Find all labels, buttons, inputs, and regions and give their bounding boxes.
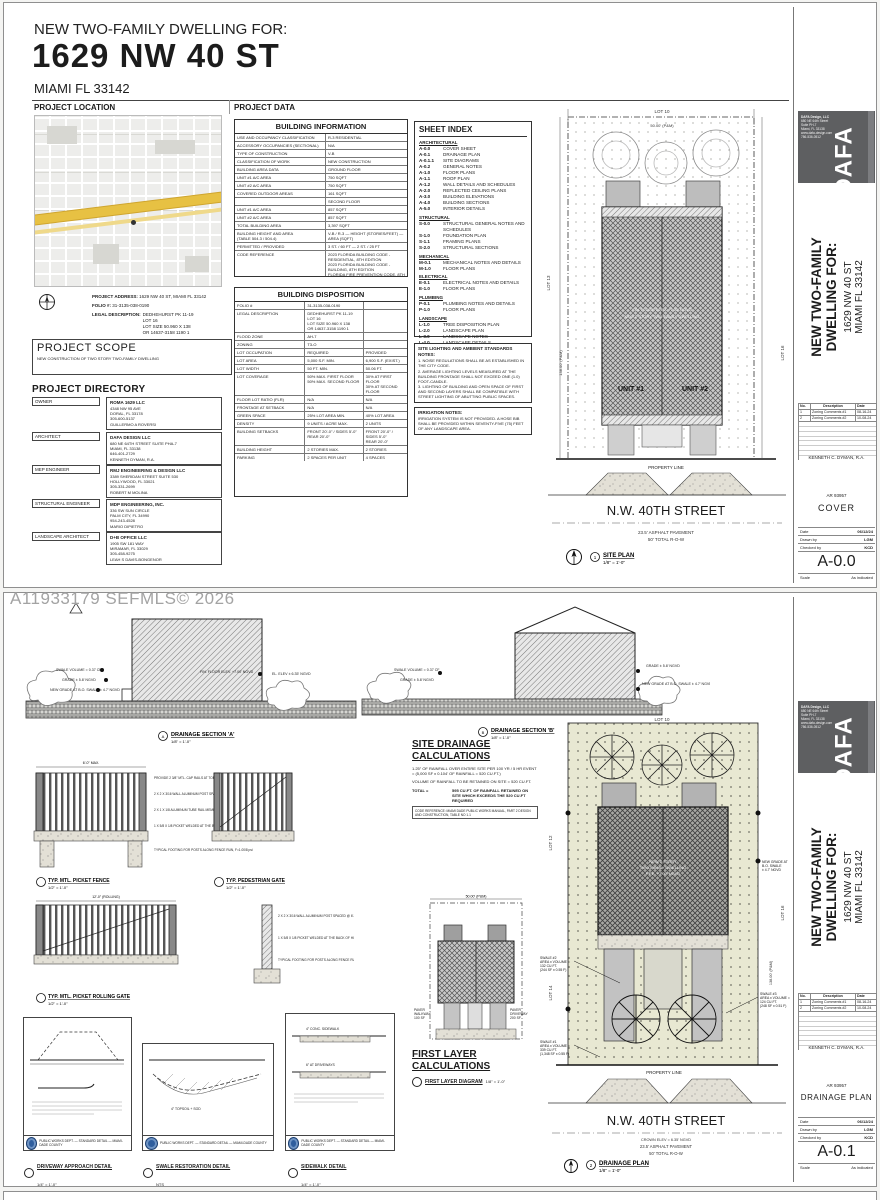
project-scope-box: PROJECT SCOPE NEW CONSTRUCTION OF TWO ST… xyxy=(32,339,232,375)
project-folio: FOLIO #: 31-3135-038-0190 xyxy=(92,303,222,309)
swale-restoration-label: SWALE RESTORATION DETAILNTS xyxy=(143,1155,230,1191)
drainage-code-reference: CODE REFERENCE: MIAMI DADE PUBLIC WORKS … xyxy=(412,806,538,819)
svg-text:PAVERDRIVEWAY200 SF: PAVERDRIVEWAY200 SF xyxy=(510,1008,528,1020)
svg-text:23.5' ASPHALT PAVEMENT: 23.5' ASPHALT PAVEMENT xyxy=(640,1144,693,1149)
sidewalk-detail-box: 4" CONC. SIDEWALK 6" AT DRIVEWAYS PUBLIC… xyxy=(285,1013,395,1151)
svg-text:4" CONC. SIDEWALK: 4" CONC. SIDEWALK xyxy=(306,1027,340,1031)
table-row: UNIT #2 A/C AREA 750 SQFT xyxy=(235,182,407,190)
building-information-title: BUILDING INFORMATION xyxy=(235,120,407,134)
sheet-number: A-0.0 xyxy=(794,553,879,571)
driveway-approach-label: DRIVEWAY APPROACH DETAIL1/4" = 1'-0" xyxy=(24,1155,112,1191)
table-row: FOLIO # 31-3135-038-0190 xyxy=(235,302,407,310)
header-rule xyxy=(32,100,789,101)
project-scope-text: NEW CONSTRUCTION OF TWO STORY TWO-FAMILY… xyxy=(33,355,231,362)
svg-text:N.W. 40TH STREET: N.W. 40TH STREET xyxy=(607,1113,726,1128)
svg-text:NEW GRADE ATB.O. SWALE± 4.7' N: NEW GRADE ATB.O. SWALE± 4.7' NGVD xyxy=(762,860,788,872)
architect-license: AR 93957 xyxy=(794,1083,879,1089)
driveway-approach-drawing xyxy=(24,1018,129,1130)
dafa-logo: DAFA Design, LLC 680 NE 64th Street Suit… xyxy=(798,701,875,773)
table-row: ACCESSORY OCCUPANCIES (SECTIONAL) N/A xyxy=(235,142,407,150)
svg-text:NEW 2 STORY TWO-FAMILY DWELLIN: NEW 2 STORY TWO-FAMILY DWELLING xyxy=(625,314,700,319)
svg-text:TYPICAL FOOTING FOR POSTS ALON: TYPICAL FOOTING FOR POSTS ALONG FENCE RU… xyxy=(278,958,354,962)
sidewalk-label: SIDEWALK DETAIL1/4" = 1'-0" xyxy=(288,1155,346,1191)
table-row: SECOND FLOOR xyxy=(235,198,407,206)
site-plan-drawing: UNIT #1 UNIT #2 FIN. FLOOR ELEV. +7.00' … xyxy=(538,103,794,577)
sheet-index-item: P-1.0FLOOR PLANS xyxy=(419,307,527,313)
svg-text:F.F.E. +7.00' NGVD: F.F.E. +7.00' NGVD xyxy=(646,871,681,876)
project-directory-title: PROJECT DIRECTORY xyxy=(32,384,145,396)
architect-of-record: KENNETH C. DYMAN, R.A. xyxy=(794,455,879,461)
svg-text:12'-0" (ROLLING): 12'-0" (ROLLING) xyxy=(92,895,120,899)
table-row: USE AND OCCUPANCY CLASSIFICATION R-3 RES… xyxy=(235,134,407,142)
drainage-calc-intro2: VOLUME OF RAINFALL TO BE RETAINED ON SIT… xyxy=(412,779,538,784)
svg-text:A: A xyxy=(162,734,165,739)
table-row: TYPE OF CONSTRUCTION V-B xyxy=(235,150,407,158)
svg-text:23.5' ASPHALT PAVEMENT: 23.5' ASPHALT PAVEMENT xyxy=(638,530,694,535)
table-row: UNIT #2 A/C AREA 857 SQFT xyxy=(235,214,407,222)
sheet-index-item: S-2.0STRUCTURAL SECTIONS xyxy=(419,245,527,251)
drainage-calc-cloud: SITE DRAINAGECALCULATIONS 1.25" OF RAINF… xyxy=(404,733,546,885)
svg-text:1/8" = 1'-0": 1/8" = 1'-0" xyxy=(171,739,191,744)
directory-entry: D+B OFFICE LLC1905 SW 181 WAY MIRAMAR, F… xyxy=(106,532,222,565)
mls-watermark: A11933179 SEFMLS© 2026 xyxy=(10,589,235,609)
dafa-logo-mark: DAFA xyxy=(830,716,858,773)
sheet-index-box: SHEET INDEX ARCHITECTURALA-0.0COVER SHEE… xyxy=(414,121,532,337)
building-disposition-cloud: BUILDING DISPOSITION FOLIO # 31-3135-038… xyxy=(228,283,414,501)
drawing-info: Date06/12/24 Drawn byLGM Checked byKCD xyxy=(798,1117,875,1142)
svg-text:1/2" = 1'-0": 1/2" = 1'-0" xyxy=(226,885,246,890)
svg-text:LOT 13: LOT 13 xyxy=(546,275,551,290)
svg-text:SWALE #2AREA x VOLUME =132 CU.: SWALE #2AREA x VOLUME =132 CU.FT.(244 SF… xyxy=(540,956,570,972)
project-title-vertical: NEW TWO-FAMILYDWELLING FOR: 1629 NW 40 S… xyxy=(794,797,879,977)
svg-text:PROPERTY LINE: PROPERTY LINE xyxy=(646,1070,682,1075)
dafa-logo: DAFA Design, LLC 680 NE 64th Street Suit… xyxy=(798,111,875,183)
document-page: NEW TWO-FAMILY DWELLING FOR: 1629 NW 40 … xyxy=(0,0,880,1200)
drainage-plan-drawing: NEW 2 STORY TWO-FAMILY DWELLING F.F.E. +… xyxy=(540,713,792,1175)
table-row: LOT OCCUPATION REQUIRED PROVIDED xyxy=(235,349,407,357)
table-row: UNIT #1 A/C AREA 857 SQFT xyxy=(235,206,407,214)
section-project-data: PROJECT DATA xyxy=(234,103,295,113)
svg-text:138.00' (P&M): 138.00' (P&M) xyxy=(769,960,773,985)
svg-text:PROPERTY LINE: PROPERTY LINE xyxy=(648,465,684,470)
revision-table: No.DescriptionDate 1 Zoning Comments #1 … xyxy=(798,403,877,460)
svg-text:TYP. MTL. PICKET FENCE: TYP. MTL. PICKET FENCE xyxy=(48,878,110,884)
svg-text:138.00' (P&M): 138.00' (P&M) xyxy=(558,350,563,376)
svg-text:6'-0" MAX.: 6'-0" MAX. xyxy=(83,761,100,765)
sheet-index-item: E-1.0FLOOR PLANS xyxy=(419,286,527,292)
project-address: PROJECT ADDRESS: 1629 NW 40 ST, MIAMI FL… xyxy=(92,294,222,300)
table-row: PERMITTED / PROVIDED 3 ST. / 60 FT — 2 S… xyxy=(235,243,407,251)
table-row: FRONTAGE AT SETBACK N/A N/A xyxy=(235,404,407,412)
column-divider xyxy=(229,100,230,114)
drainage-plan-cloud: NEW 2 STORY TWO-FAMILY DWELLING F.F.E. +… xyxy=(540,713,792,1175)
project-directory: OWNERROMA 1629 LLC4348 NW 95 AVE DORAL, … xyxy=(32,397,222,573)
building-information-table: BUILDING INFORMATION USE AND OCCUPANCY C… xyxy=(234,119,408,277)
table-row: BUILDING AREA DATA GROUND FLOOR xyxy=(235,166,407,174)
first-layer-cloud: 50.00' (P&M) PAVERWALKWAY100 SF PAVERDRI… xyxy=(404,889,546,1157)
svg-text:NEW 2 STORY: NEW 2 STORY xyxy=(649,859,677,864)
irrigation-notes: IRRIGATION NOTES: IRRIGATION SYSTEM IS N… xyxy=(414,407,532,435)
svg-text:4" TOPSOIL + SOD: 4" TOPSOIL + SOD xyxy=(171,1107,201,1111)
header-subtitle: MIAMI FL 33142 xyxy=(34,81,130,96)
swale-restoration-drawing: 4" TOPSOIL + SOD xyxy=(143,1044,271,1130)
svg-text:1/2" = 1'-0": 1/2" = 1'-0" xyxy=(48,885,68,890)
svg-text:1 X 5/8 X 1/8 PICKET WELDED AT: 1 X 5/8 X 1/8 PICKET WELDED AT THE BACK … xyxy=(278,936,354,940)
table-row: TOTAL BUILDING AREA 3,397 SQFT xyxy=(235,222,407,230)
sheet-index-cloud: SHEET INDEX ARCHITECTURALA-0.0COVER SHEE… xyxy=(408,113,540,508)
directory-entry: MDP ENGINEERING, INC.336 SW SUN CIRCLE P… xyxy=(106,499,222,532)
table-row: FLOOD ZONE AH-7 xyxy=(235,333,407,341)
svg-text:50' TOTAL R-O-W: 50' TOTAL R-O-W xyxy=(648,537,685,542)
sheet-number: A-0.1 xyxy=(794,1143,879,1161)
building-information-cloud: BUILDING INFORMATION USE AND OCCUPANCY C… xyxy=(228,115,414,281)
north-arrow-icon xyxy=(38,293,56,311)
svg-text:DRAINAGE SECTION 'A': DRAINAGE SECTION 'A' xyxy=(171,732,235,738)
drawing-info: Date06/12/24 Drawn byLGM Checked byKCD xyxy=(798,527,875,552)
map-site-marker xyxy=(131,220,136,225)
directory-role: ARCHITECT xyxy=(32,432,100,441)
table-row: LOT WIDTH 50 FT. MIN. 50.06 FT. xyxy=(235,365,407,373)
sheet-index-item: M-1.0FLOOR PLANS xyxy=(419,266,527,272)
svg-text:SWALE #3AREA x VOLUME =124 CU.: SWALE #3AREA x VOLUME =124 CU.FT.(248 SF… xyxy=(760,992,790,1008)
svg-text:2 X 2 X 3/16 WALL ALUMINUM POS: 2 X 2 X 3/16 WALL ALUMINUM POST SPACED @… xyxy=(278,914,354,918)
svg-text:NEW GRADE AT B.O. SWALE ± 4.7': NEW GRADE AT B.O. SWALE ± 4.7' NGVD xyxy=(642,682,710,686)
building-disposition-title: BUILDING DISPOSITION xyxy=(235,288,407,302)
directory-role: MEP ENGINEER xyxy=(32,465,100,474)
sheet-next-edge xyxy=(3,1191,877,1200)
table-row: CLASSIFICATION OF WORK NEW CONSTRUCTION xyxy=(235,158,407,166)
drainage-calc-intro1: 1.25" OF RAINFALL OVER ENTIRE SITE PER 1… xyxy=(412,766,538,776)
table-row: LOT COVERAGE 50% MAX. FIRST FLOOR 50% MA… xyxy=(235,373,407,396)
svg-text:LOT 10: LOT 10 xyxy=(655,109,670,114)
svg-text:UNIT #2: UNIT #2 xyxy=(682,386,708,393)
svg-text:SWALE #1AREA x VOLUME =339 CU.: SWALE #1AREA x VOLUME =339 CU.FT.(1,348 … xyxy=(540,1040,570,1056)
fence-details-cloud: 6'-0" MAX. PROVIDE 2 3/8" MTL. CAP RAILS… xyxy=(14,755,354,1017)
svg-text:1: 1 xyxy=(594,555,597,560)
sheet-index-item: S-0.0STRUCTURAL GENERAL NOTES AND SCHEDU… xyxy=(419,221,527,233)
svg-text:50.00' (P&M): 50.00' (P&M) xyxy=(466,895,487,899)
table-row: UNIT #1 A/C AREA 750 SQFT xyxy=(235,174,407,182)
svg-text:50' TOTAL R-O-W: 50' TOTAL R-O-W xyxy=(649,1151,683,1156)
directory-entry: ROMA 1629 LLC4348 NW 95 AVE DORAL, FL 33… xyxy=(106,397,222,430)
table-row: BUILDING HEIGHT AND AREA (TABLE 504.3 / … xyxy=(235,230,407,243)
svg-text:FIN. FLOOR ELEV. +7.00' NGVD: FIN. FLOOR ELEV. +7.00' NGVD xyxy=(632,307,691,312)
svg-text:TYP. PEDESTRIAN GATE: TYP. PEDESTRIAN GATE xyxy=(226,878,286,884)
table-row: PARKING 2 SPACES PER UNIT 4 SPACES xyxy=(235,454,407,461)
detail-callout-icon xyxy=(412,1077,422,1087)
svg-text:1/8" = 1'-0": 1/8" = 1'-0" xyxy=(599,1168,621,1173)
revision-table: No.DescriptionDate 1 Zoning Comments #1 … xyxy=(798,993,877,1050)
directory-role: OWNER xyxy=(32,397,100,406)
svg-text:2: 2 xyxy=(590,1163,593,1168)
svg-text:SWALE VOLUME = 0.37 CF: SWALE VOLUME = 0.37 CF xyxy=(394,668,440,672)
table-row: FLOOR LOT RATIO (FLR) N/A N/A xyxy=(235,396,407,404)
scale-row: ScaleAs indicated xyxy=(798,1163,875,1171)
svg-text:CROWN ELEV = 6.35' NGVD: CROWN ELEV = 6.35' NGVD xyxy=(641,1138,691,1142)
svg-text:NEW GRADE AT B.O. SWALE ± 4.7': NEW GRADE AT B.O. SWALE ± 4.7' NGVD xyxy=(50,688,120,692)
sheet-index-title: SHEET INDEX xyxy=(419,125,527,137)
svg-text:PAVERWALKWAY100 SF: PAVERWALKWAY100 SF xyxy=(414,1008,432,1020)
section-project-location: PROJECT LOCATION xyxy=(34,103,115,113)
sheet-name: DRAINAGE PLAN xyxy=(794,1093,879,1102)
table-row: BUILDING HEIGHT 2 STORIES MAX. 2 STORIES xyxy=(235,446,407,454)
swale-restoration-detail-box: 4" TOPSOIL + SOD PUBLIC WORKS DEPT. — ST… xyxy=(142,1043,274,1151)
dafa-logo-mark: DAFA xyxy=(830,126,858,183)
project-title-vertical: NEW TWO-FAMILYDWELLING FOR: 1629 NW 40 S… xyxy=(794,207,879,387)
svg-text:B: B xyxy=(482,730,485,735)
svg-text:1/8" = 1'-0": 1/8" = 1'-0" xyxy=(603,560,625,565)
sheet-index-item: A-5.0INTERIOR DETAILS xyxy=(419,206,527,212)
site-plan-cloud: UNIT #1 UNIT #2 FIN. FLOOR ELEV. +7.00' … xyxy=(538,103,794,577)
header-pretitle: NEW TWO-FAMILY DWELLING FOR: xyxy=(34,21,287,38)
svg-text:DRAINAGE PLAN: DRAINAGE PLAN xyxy=(599,1161,649,1167)
table-row: LOT AREA 5,000 S.F. MIN. 6,900 S.F. (EXI… xyxy=(235,357,407,365)
first-layer-title: FIRST LAYERCALCULATIONS xyxy=(412,1049,538,1073)
svg-text:LOT 16: LOT 16 xyxy=(780,905,785,920)
table-row: ZONING T3-O xyxy=(235,341,407,349)
building-disposition-table: BUILDING DISPOSITION FOLIO # 31-3135-038… xyxy=(234,287,408,497)
first-layer-diagram: 50.00' (P&M) PAVERWALKWAY100 SF PAVERDRI… xyxy=(412,893,538,1045)
svg-text:TYPICAL FOOTING FOR POSTS ALON: TYPICAL FOOTING FOR POSTS ALONG FENCE RU… xyxy=(154,848,253,852)
svg-text:GRADE ± 5.8' NGVD: GRADE ± 5.8' NGVD xyxy=(400,678,434,682)
svg-text:LOT 12: LOT 12 xyxy=(548,835,553,850)
site-lighting-notes: SITE LIGHTING AND AMBIENT STANDARDS NOTE… xyxy=(414,343,532,403)
miami-dade-seal-icon xyxy=(145,1137,158,1150)
project-scope-title: PROJECT SCOPE xyxy=(33,340,231,355)
svg-text:UNIT #1: UNIT #1 xyxy=(618,386,644,393)
table-row: GREEN SPACE 25% LOT AREA MIN. 40% LOT AR… xyxy=(235,412,407,420)
table-row: BUILDING SETBACKS FRONT 20'-0" / SIDES 5… xyxy=(235,428,407,446)
directory-entry: DAFA DESIGN LLC680 NE 64TH STREET SUITE … xyxy=(106,432,222,465)
sheet-index-list: ARCHITECTURALA-0.0COVER SHEETA-0.1DRAINA… xyxy=(419,140,527,347)
fence-details-drawing: 6'-0" MAX. PROVIDE 2 3/8" MTL. CAP RAILS… xyxy=(14,755,354,1017)
svg-text:EL. ELEV ± 6.35' NGVD: EL. ELEV ± 6.35' NGVD xyxy=(272,672,311,676)
sidewalk-drawing: 4" CONC. SIDEWALK 6" AT DRIVEWAYS xyxy=(286,1014,392,1130)
sheet-drainage: SWALE VOLUME = 0.37 CF GRADE ± 5.8' NGVD… xyxy=(3,592,877,1187)
svg-text:GRADE ± 5.8' NGVD: GRADE ± 5.8' NGVD xyxy=(62,678,96,682)
miami-dade-seal-icon xyxy=(26,1137,37,1150)
svg-text:50.00' (P&M): 50.00' (P&M) xyxy=(650,123,674,128)
svg-text:SITE PLAN: SITE PLAN xyxy=(603,553,634,559)
sheet-name: COVER xyxy=(794,503,879,513)
svg-text:N.W. 40TH STREET: N.W. 40TH STREET xyxy=(607,503,726,518)
svg-text:SWALE VOLUME = 0.37 CF: SWALE VOLUME = 0.37 CF xyxy=(56,668,102,672)
directory-role: STRUCTURAL ENGINEER xyxy=(32,499,100,508)
driveway-approach-detail-box: PUBLIC WORKS DEPT. — STANDARD DETAIL — M… xyxy=(23,1017,132,1151)
table-row: CODE REFERENCE 2023 FLORIDA BUILDING COD… xyxy=(235,251,407,277)
svg-text:2 X 1 X 1/8 ALUMINUM TUBE RAIL: 2 X 1 X 1/8 ALUMINUM TUBE RAIL MEMBER xyxy=(154,808,220,812)
miami-dade-seal-icon xyxy=(288,1137,299,1150)
legal-description: LEGAL DESCRIPTION: DEDHEHURST PK 11-19 L… xyxy=(92,312,222,336)
svg-text:LOT 14: LOT 14 xyxy=(548,985,553,1000)
svg-text:TYP. MTL. PICKET ROLLING GATE: TYP. MTL. PICKET ROLLING GATE xyxy=(48,994,131,1000)
svg-text:LOT 16: LOT 16 xyxy=(780,345,785,360)
svg-text:TWO-FAMILY DWELLING: TWO-FAMILY DWELLING xyxy=(640,865,687,870)
page-title: 1629 NW 40 ST xyxy=(32,37,280,75)
architect-of-record: KENNETH C. DYMAN, R.A. xyxy=(794,1045,879,1051)
svg-text:GRADE ± 5.8' NGVD: GRADE ± 5.8' NGVD xyxy=(646,664,680,668)
table-row: COVERED OUTDOOR AREAS 161 SQFT xyxy=(235,190,407,198)
drainage-calc-title: SITE DRAINAGECALCULATIONS xyxy=(412,739,538,763)
svg-text:6" AT DRIVEWAYS: 6" AT DRIVEWAYS xyxy=(306,1063,336,1067)
sheet-cover: NEW TWO-FAMILY DWELLING FOR: 1629 NW 40 … xyxy=(3,2,877,588)
table-row: DENSITY 9 UNITS / ACRE MAX. 2 UNITS xyxy=(235,420,407,428)
svg-text:FIN. FLOOR ELEV. +7.00' NGVD: FIN. FLOOR ELEV. +7.00' NGVD xyxy=(200,670,254,674)
titleblock-cover: DAFA Design, LLC 680 NE 64th Street Suit… xyxy=(793,7,879,583)
directory-role: LANDSCAPE ARCHITECT xyxy=(32,532,100,541)
architect-license: AR 93957 xyxy=(794,493,879,499)
location-map xyxy=(34,115,222,287)
directory-entry: RMJ ENGINEERING & DESIGN LLC3389 SHERIDA… xyxy=(106,465,222,498)
scale-row: ScaleAs indicated xyxy=(798,573,875,581)
titleblock-drainage: DAFA Design, LLC 680 NE 64th Street Suit… xyxy=(793,597,879,1182)
table-row: LEGAL DESCRIPTION DEDHEHURST PK 11-19 LO… xyxy=(235,310,407,333)
svg-text:LOT 10: LOT 10 xyxy=(655,717,670,722)
svg-text:1/2" = 1'-0": 1/2" = 1'-0" xyxy=(48,1001,68,1006)
